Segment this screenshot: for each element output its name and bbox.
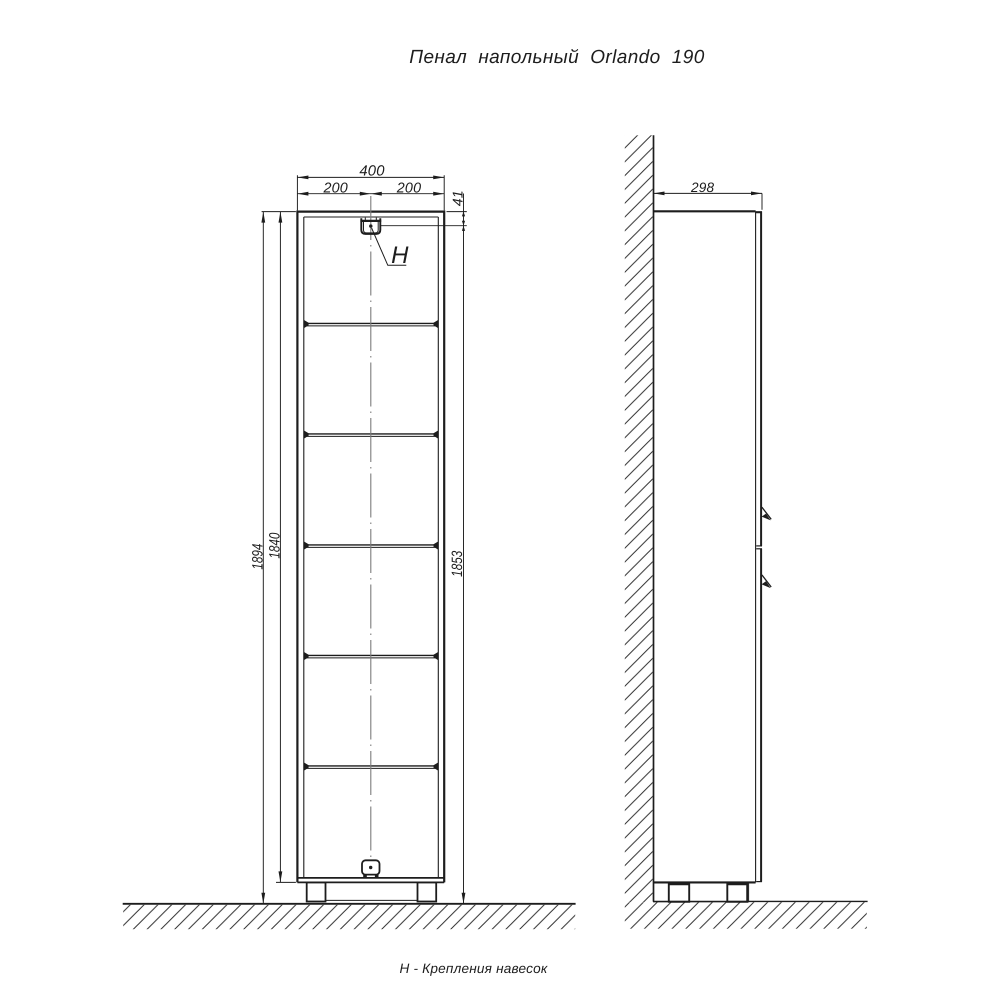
svg-text:Н - Крепления навесок: Н - Крепления навесок — [399, 961, 547, 976]
svg-text:H: H — [391, 242, 409, 269]
svg-text:400: 400 — [359, 164, 385, 180]
svg-text:298: 298 — [690, 180, 715, 195]
svg-text:1853: 1853 — [449, 550, 466, 577]
svg-text:1840: 1840 — [267, 532, 284, 559]
svg-text:200: 200 — [396, 181, 421, 197]
svg-text:Пенал напольный Orlando 190: Пенал напольный Orlando 190 — [409, 47, 704, 68]
svg-text:1894: 1894 — [249, 544, 266, 570]
svg-text:200: 200 — [322, 181, 347, 197]
